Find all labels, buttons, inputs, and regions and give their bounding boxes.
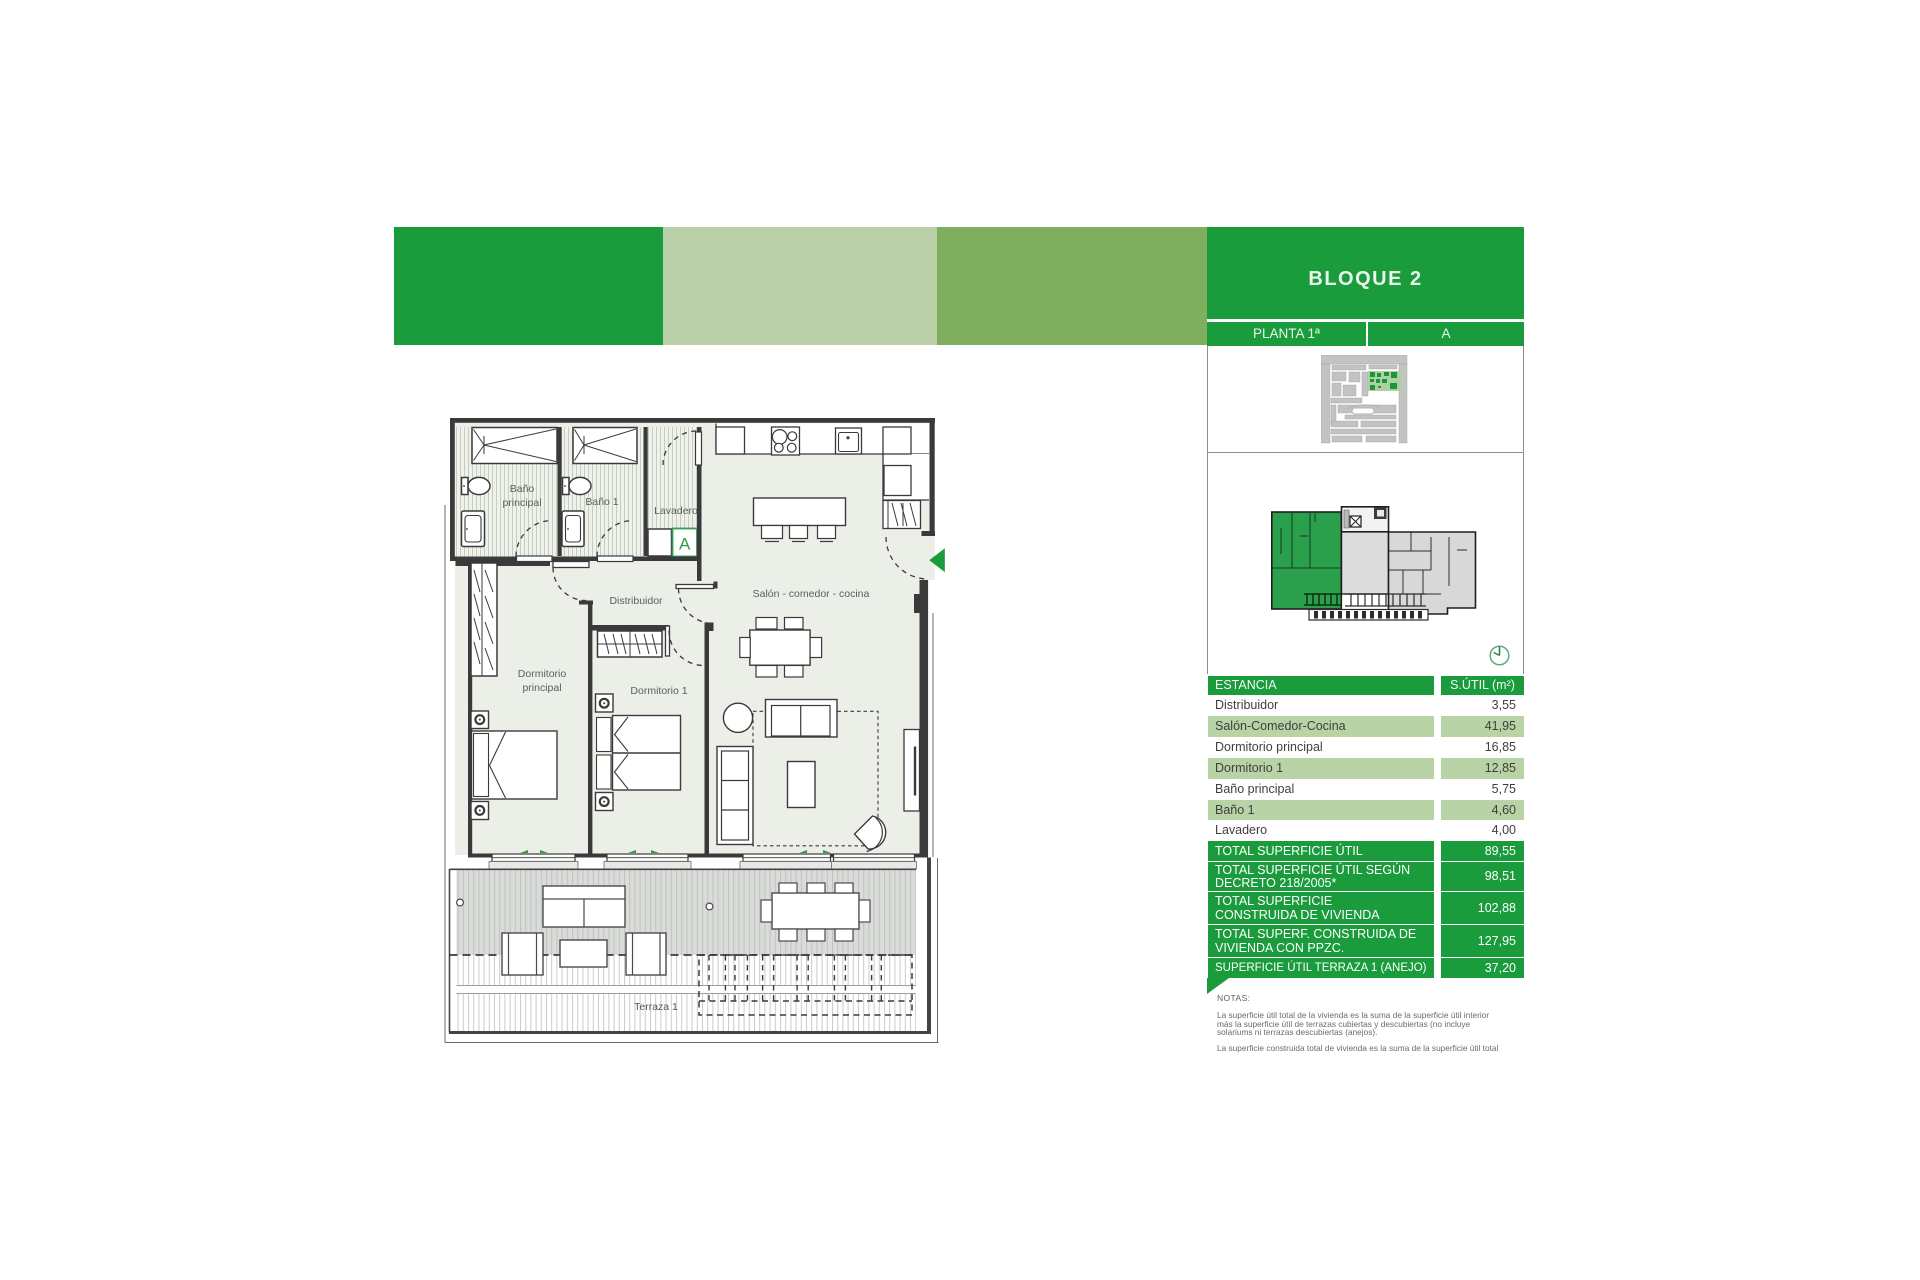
- svg-text:Baño 1: Baño 1: [585, 496, 618, 508]
- svg-text:principal: principal: [502, 497, 541, 509]
- svg-text:principal: principal: [522, 682, 561, 694]
- svg-text:Salón - comedor - cocina: Salón - comedor - cocina: [753, 588, 870, 600]
- svg-text:Baño: Baño: [510, 483, 535, 495]
- svg-text:Dormitorio 1: Dormitorio 1: [630, 685, 687, 697]
- svg-text:Distribuidor: Distribuidor: [609, 595, 663, 607]
- svg-text:Lavadero: Lavadero: [654, 505, 698, 517]
- svg-text:Dormitorio: Dormitorio: [518, 668, 567, 680]
- svg-text:Terraza 1: Terraza 1: [634, 1001, 678, 1013]
- svg-text:A: A: [679, 535, 691, 554]
